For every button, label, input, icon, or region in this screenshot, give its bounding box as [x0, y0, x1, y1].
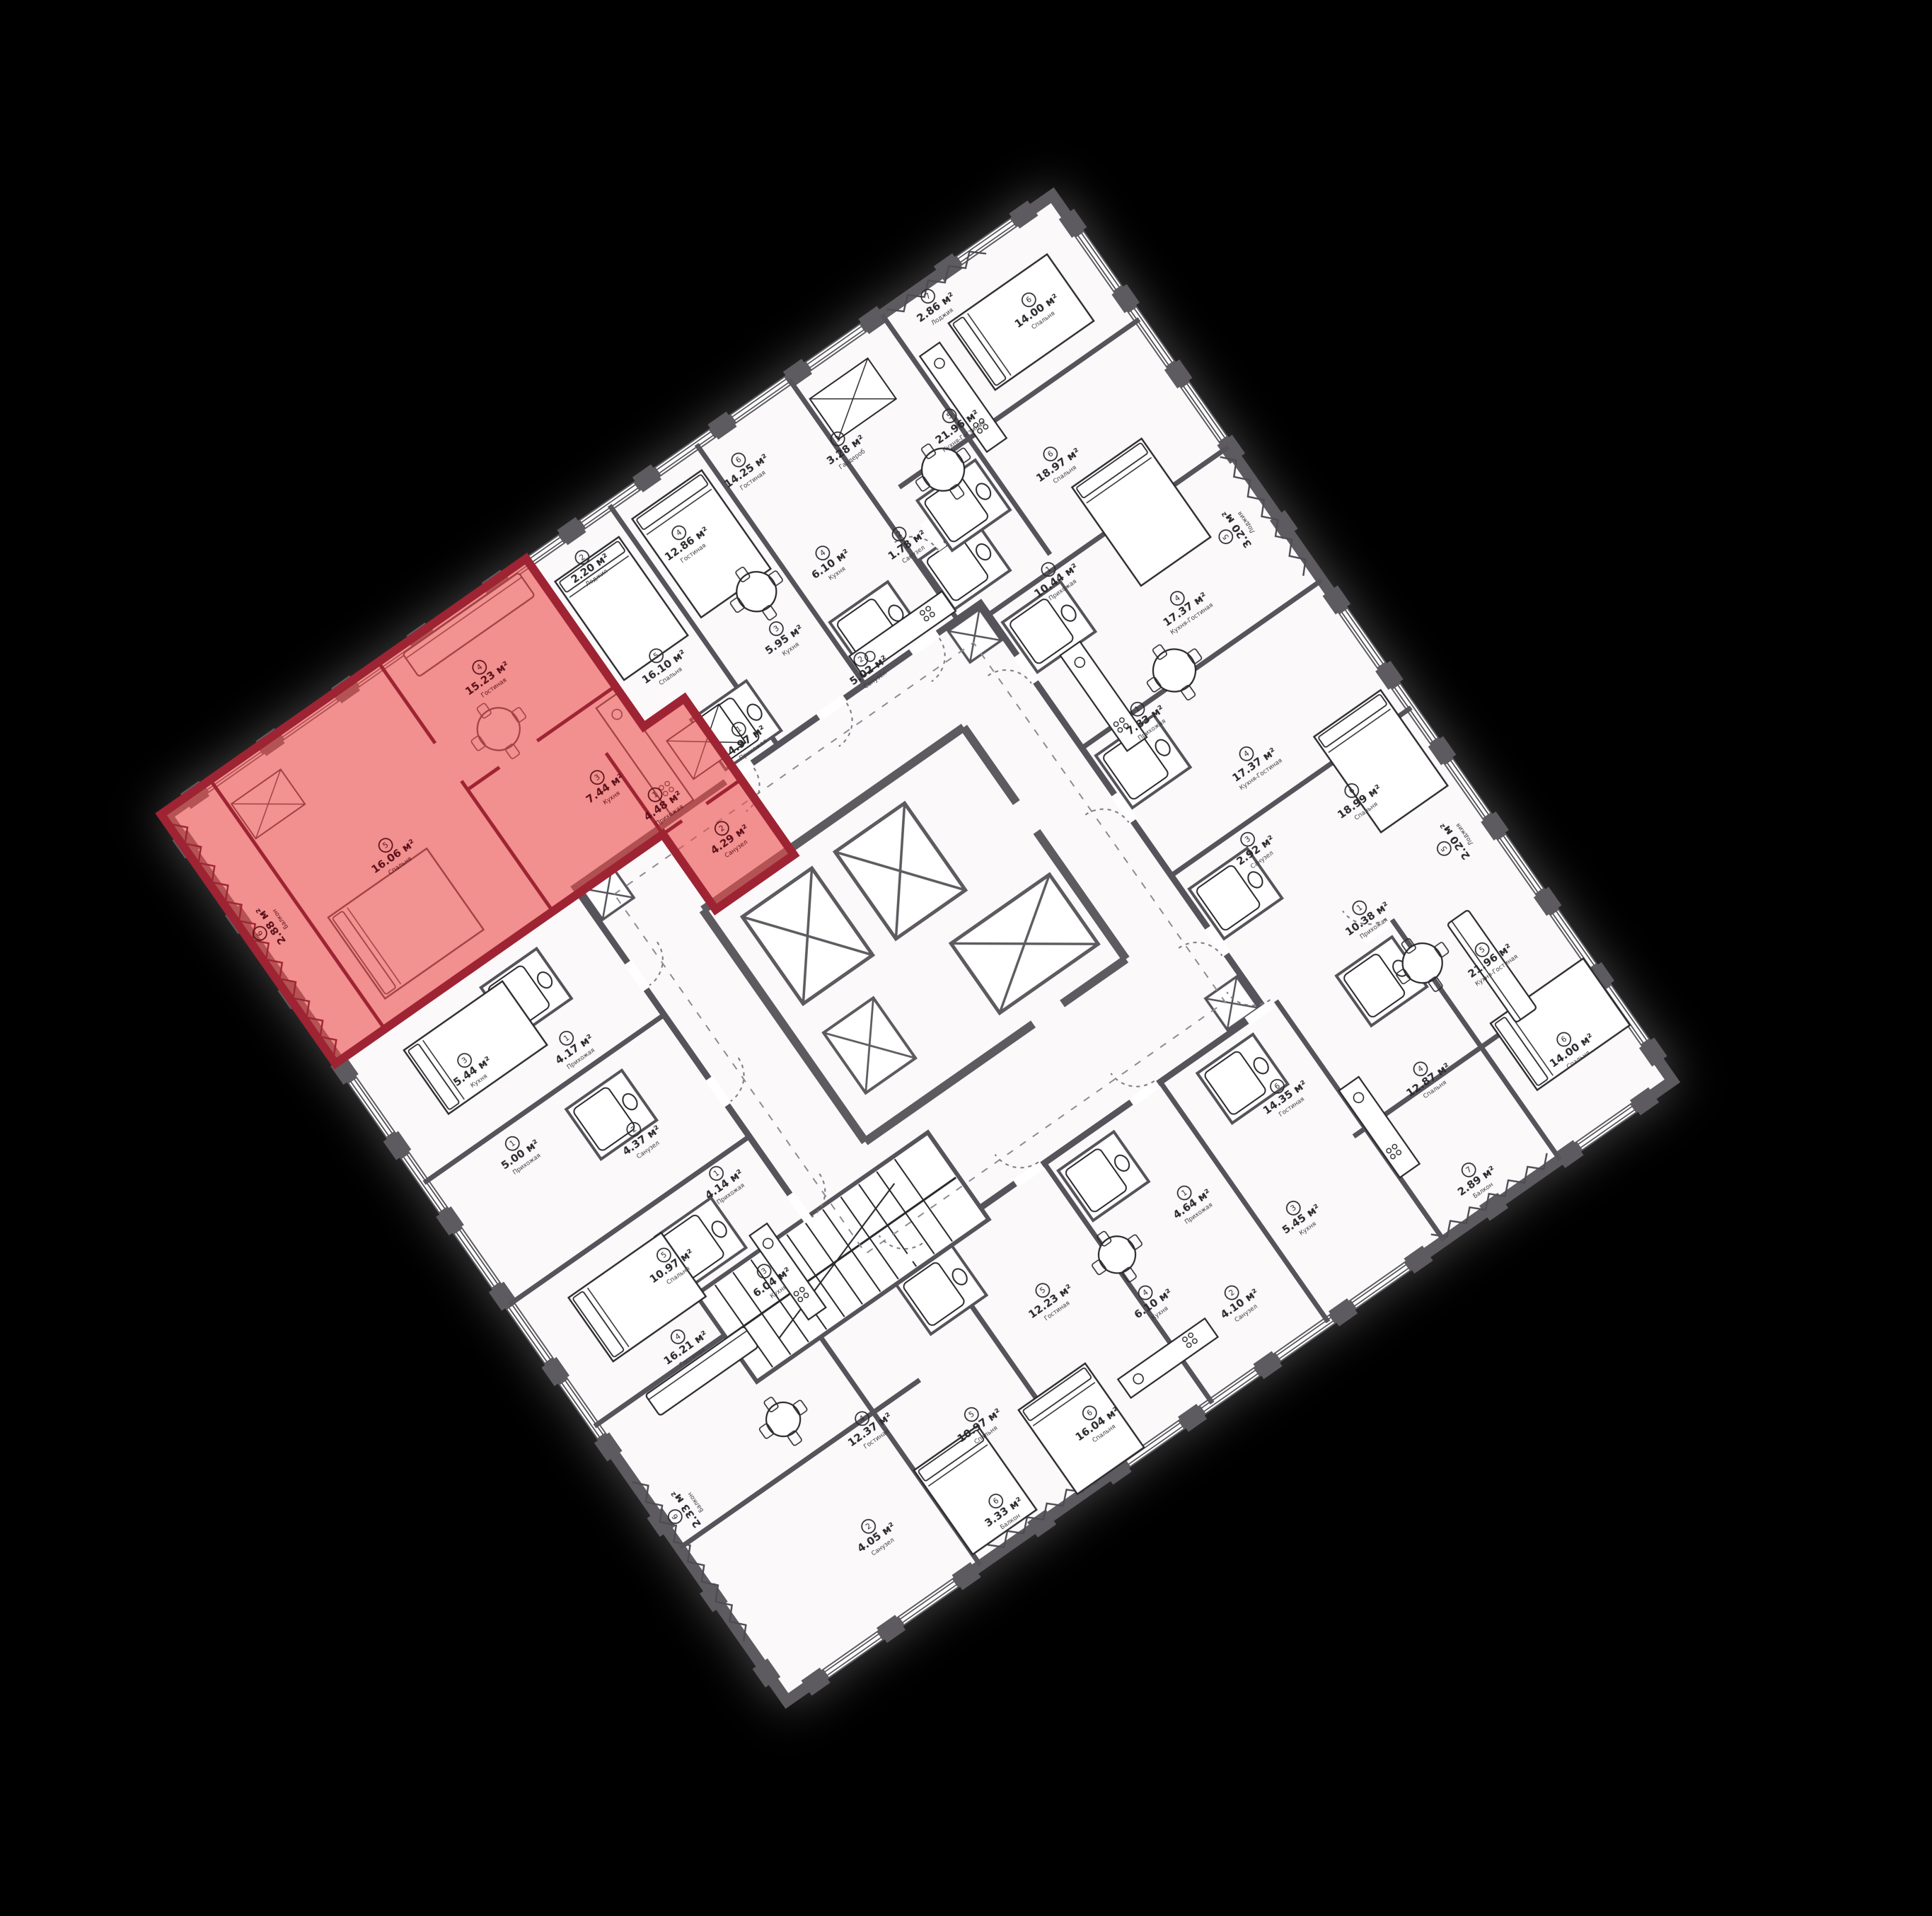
screenshot-stage: 22.20 м²Лоджия516.10 м²Спальня14.97 м²Пр…: [0, 0, 1932, 1916]
floor-plan-svg: 22.20 м²Лоджия516.10 м²Спальня14.97 м²Пр…: [151, 180, 1689, 1717]
floor-plan: 22.20 м²Лоджия516.10 м²Спальня14.97 м²Пр…: [151, 180, 1689, 1717]
